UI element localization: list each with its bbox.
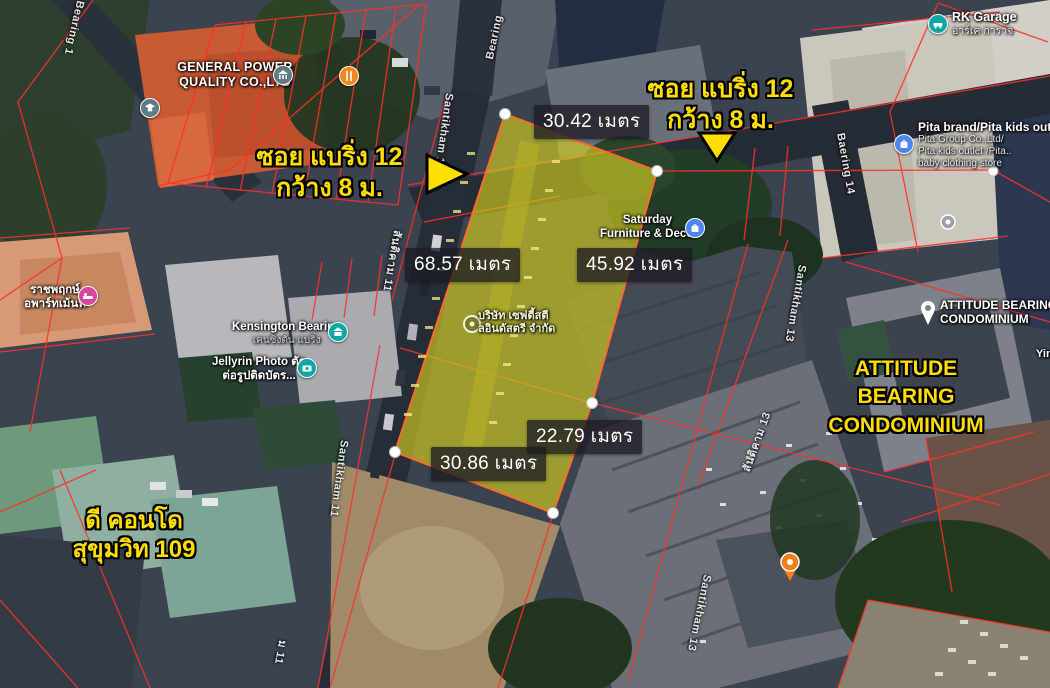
annotation-line: CONDOMINIUM: [825, 412, 987, 440]
shopping-bag-icon[interactable]: [685, 218, 705, 238]
poi-text: Kensington Bearing: [232, 321, 341, 335]
hotel-icon[interactable]: [78, 286, 98, 306]
poi-text: baby clothing store: [918, 158, 1050, 170]
poi-text: Pita brand/Pita kids outlet: [918, 120, 1050, 134]
annotation-line: ซอย แบริ่ง 12: [638, 74, 803, 105]
poi-text: ลอินดัสตรี จำกัด: [478, 323, 555, 336]
school-icon[interactable]: [140, 98, 160, 118]
poi-text: Furniture & Decor: [600, 228, 695, 242]
poi-label-yin: Yin: [1036, 348, 1050, 361]
poi-text: Pita Group Co.,Ltd/: [918, 134, 1050, 146]
measurement-right: 45.92 เมตร: [577, 248, 692, 282]
arrow-right-icon: [424, 152, 470, 196]
annotation-line: กว้าง 8 ม.: [242, 173, 417, 204]
annotation-d-condo: ดี คอนโด สุขุมวิท 109: [55, 506, 213, 565]
poi-label-attitude-condo: ATTITUDE BEARING CONDOMINIUM: [940, 298, 1050, 326]
poi-label-rk-garage: RK Garage อาร์เค การาจ: [952, 10, 1017, 37]
annotation-line: ซอย แบริ่ง 12: [242, 142, 417, 173]
annotation-attitude-condo: ATTITUDE BEARING CONDOMINIUM: [825, 355, 987, 440]
measurement-top: 30.42 เมตร: [534, 105, 649, 139]
poi-label-jellyrin: Jellyrin Photo ตัด ต่อรูปติดบัตร...: [212, 356, 306, 383]
company-building-icon[interactable]: [273, 65, 293, 85]
land-plot-map-image: Bearing 1 Bearing Santikham 11 สันติคาม …: [0, 0, 1050, 688]
generic-poi-icon[interactable]: [941, 215, 955, 229]
poi-text: อาร์เค การาจ: [952, 25, 1017, 37]
annotation-soi-bearing-left: ซอย แบริ่ง 12 กว้าง 8 ม.: [242, 142, 417, 203]
annotation-line: ดี คอนโด: [55, 506, 213, 535]
poi-text: CONDOMINIUM: [940, 312, 1050, 326]
poi-text: Jellyrin Photo ตัด: [212, 356, 306, 370]
annotation-line: ATTITUDE: [825, 355, 987, 383]
annotation-soi-bearing-right: ซอย แบริ่ง 12 กว้าง 8 ม.: [638, 74, 803, 135]
camera-icon[interactable]: [297, 358, 317, 378]
arrow-down-icon: [696, 130, 738, 164]
poi-text: Pita kids outlet /Pita..: [918, 146, 1050, 158]
kensington-place-icon[interactable]: [328, 322, 348, 342]
annotation-line: สุขุมวิท 109: [55, 535, 213, 564]
poi-text: ATTITUDE BEARING: [940, 298, 1050, 312]
measurement-left: 68.57 เมตร: [405, 248, 520, 282]
garage-icon[interactable]: [928, 14, 948, 34]
measurement-bottom: 30.86 เมตร: [431, 447, 546, 481]
poi-text: ต่อรูปติดบัตร...: [212, 370, 306, 384]
poi-text: RK Garage: [952, 10, 1017, 25]
poi-label-company-in-plot: บริษัท เซฟตี้สตี ลอินดัสตรี จำกัด: [478, 310, 555, 336]
poi-text: บริษัท เซฟตี้สตี: [478, 310, 555, 323]
restaurant-icon[interactable]: [339, 66, 359, 86]
poi-text: Saturday: [600, 214, 695, 228]
poi-text: เคนซิงตัน แบริ่ง: [232, 335, 341, 347]
poi-label-kensington: Kensington Bearing เคนซิงตัน แบริ่ง: [232, 321, 341, 346]
poi-text: Yin: [1036, 348, 1050, 361]
annotation-line: BEARING: [825, 383, 987, 411]
shopping-bag-icon[interactable]: [894, 134, 914, 154]
poi-label-pita: Pita brand/Pita kids outlet Pita Group C…: [918, 120, 1050, 170]
poi-label-saturday: Saturday Furniture & Decor: [600, 214, 695, 241]
